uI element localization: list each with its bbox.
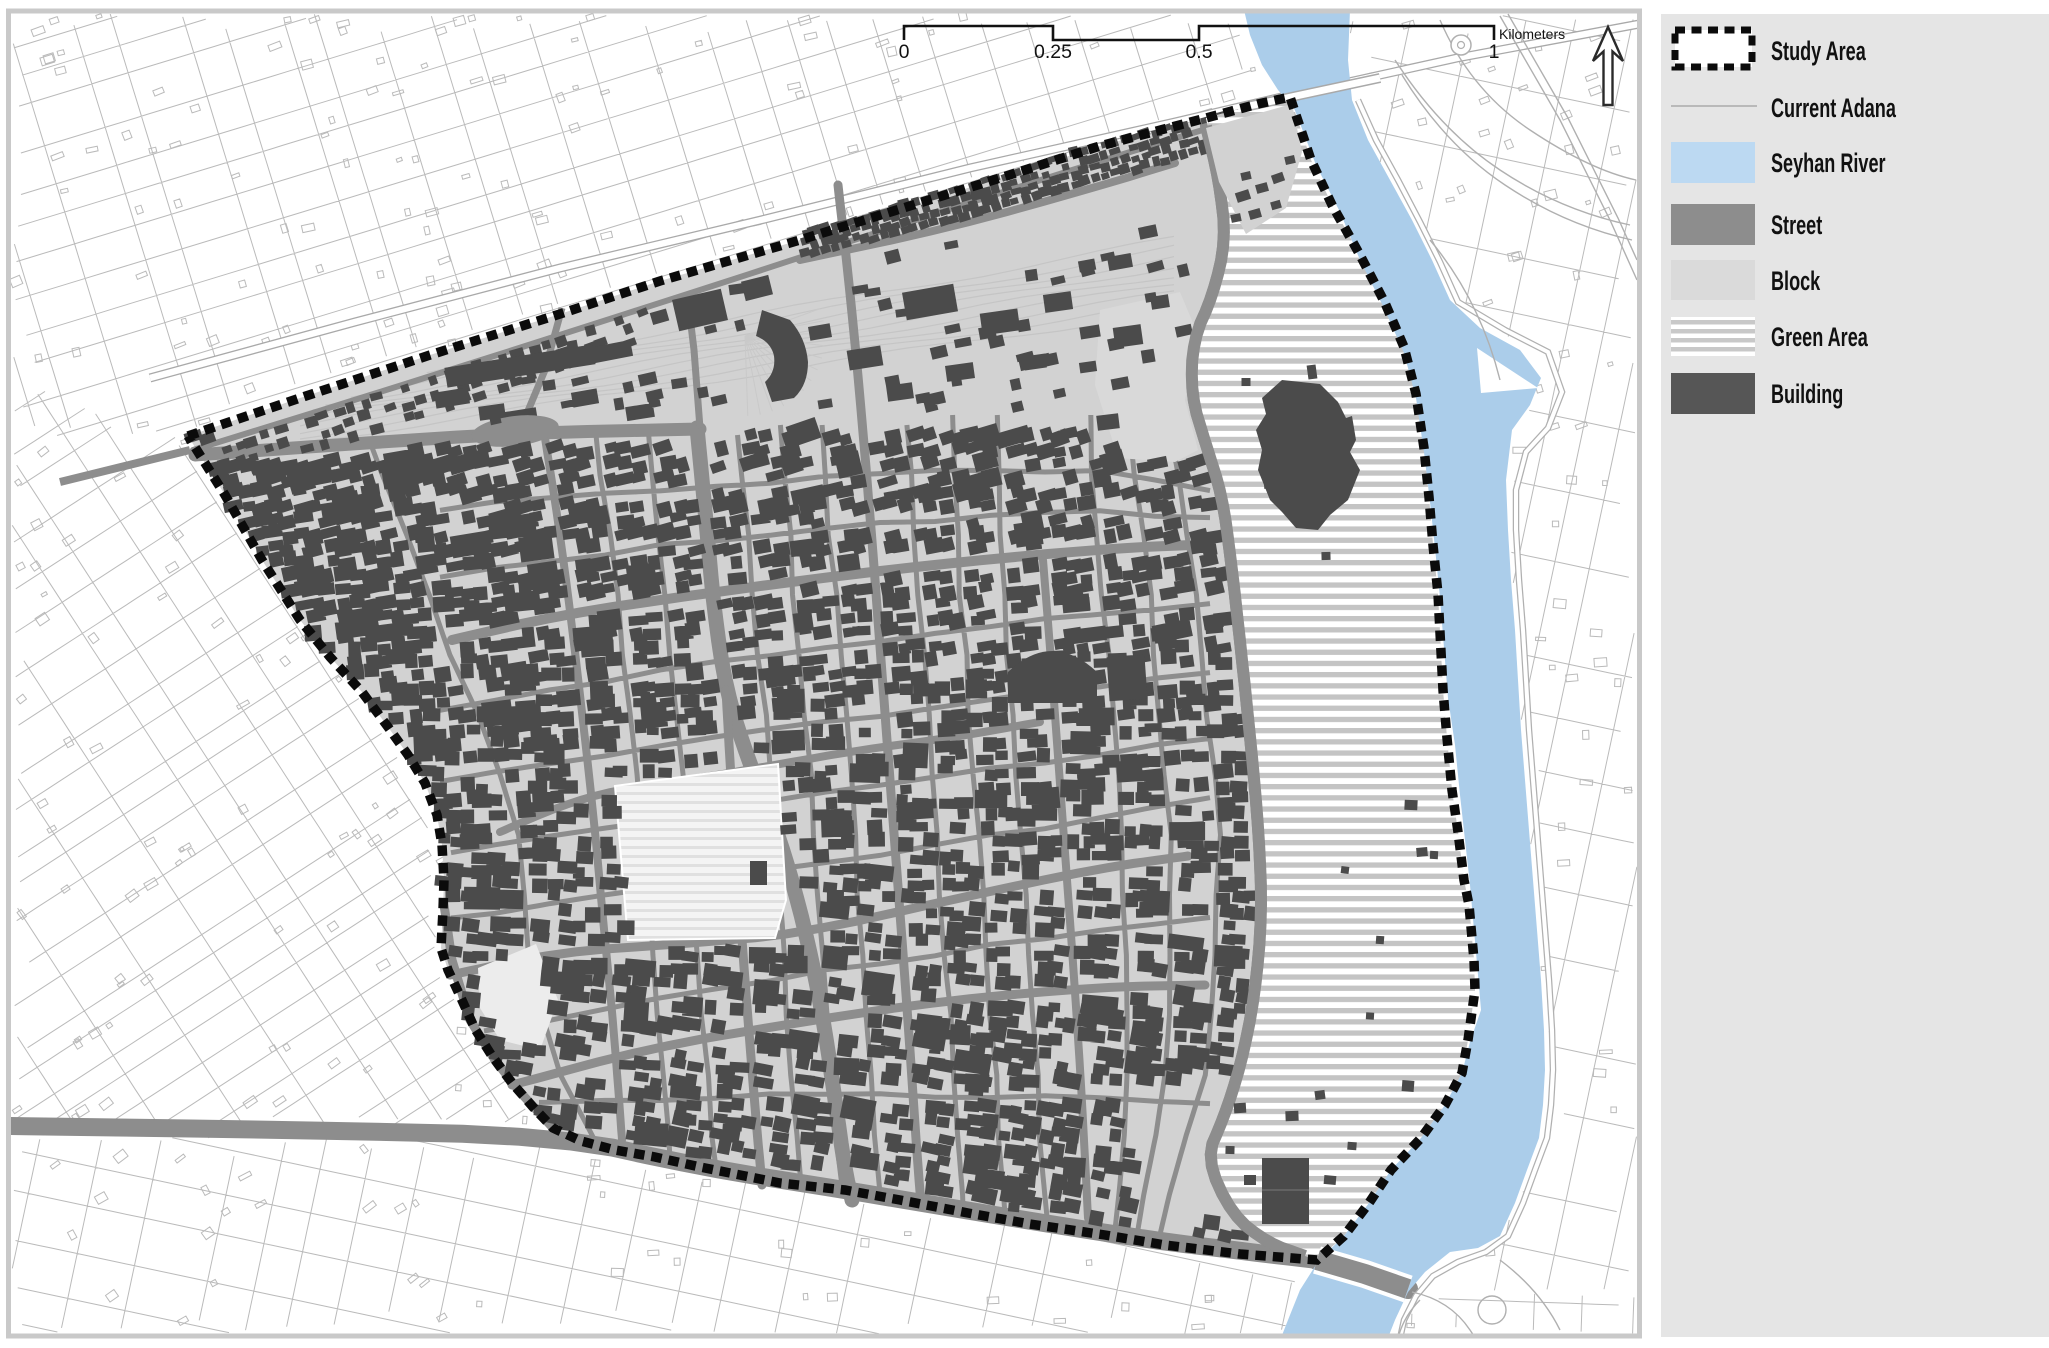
svg-text:Study Area: Study Area (1771, 35, 1866, 66)
svg-text:Kilometers: Kilometers (1499, 26, 1565, 42)
svg-text:0: 0 (899, 41, 910, 63)
svg-text:Green Area: Green Area (1771, 321, 1868, 352)
svg-text:0.5: 0.5 (1185, 41, 1212, 63)
svg-text:Seyhan River: Seyhan River (1771, 147, 1886, 178)
svg-text:1: 1 (1489, 41, 1500, 63)
svg-text:Building: Building (1771, 378, 1843, 409)
svg-text:Current Adana: Current Adana (1771, 92, 1896, 123)
svg-text:0.25: 0.25 (1034, 41, 1072, 63)
svg-text:Street: Street (1771, 209, 1823, 240)
svg-text:Block: Block (1771, 265, 1820, 296)
